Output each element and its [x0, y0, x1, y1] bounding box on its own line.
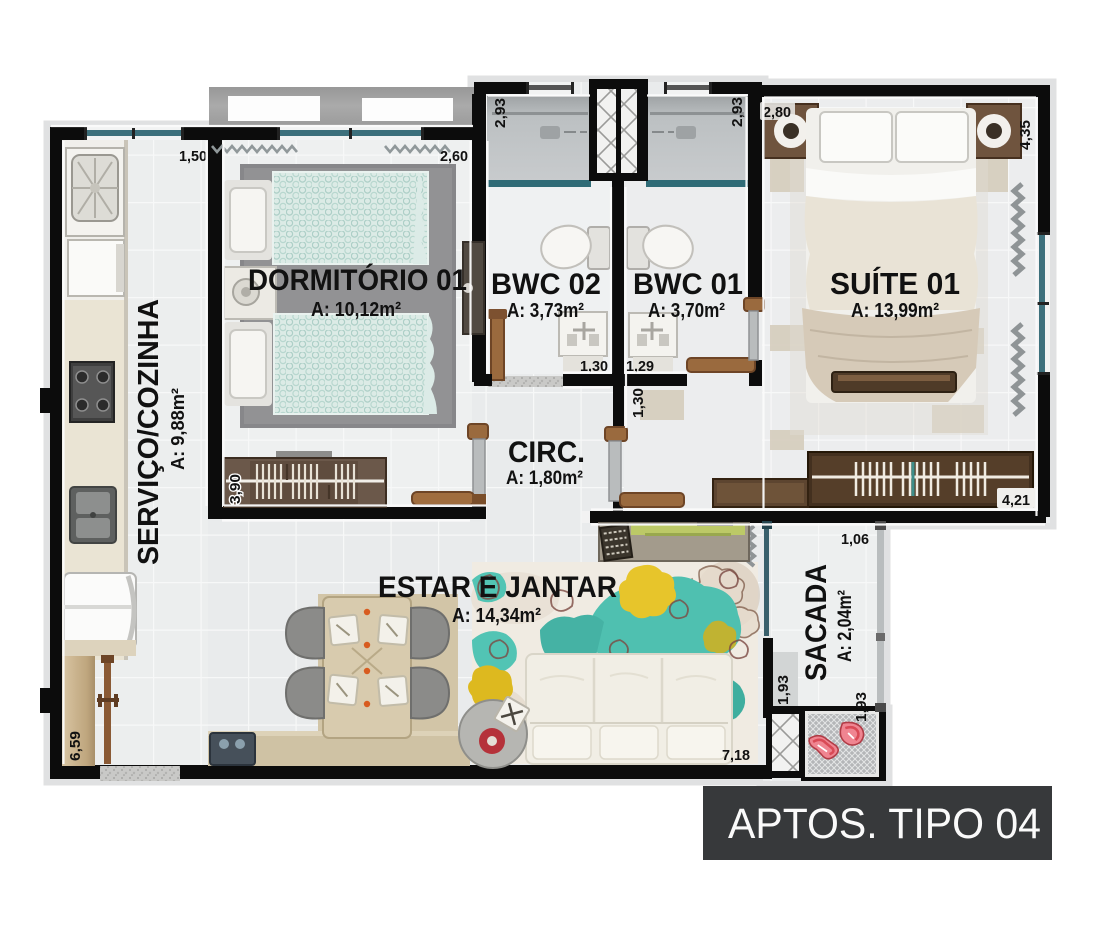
- svg-text:CIRC.: CIRC.: [508, 436, 585, 469]
- svg-text:A: 9,88m²: A: 9,88m²: [168, 388, 188, 470]
- svg-text:A: 2,04m²: A: 2,04m²: [835, 590, 856, 662]
- svg-text:DORMITÓRIO 01: DORMITÓRIO 01: [248, 263, 467, 297]
- svg-text:4,21: 4,21: [1002, 492, 1030, 509]
- svg-text:BWC 01: BWC 01: [633, 268, 743, 301]
- svg-text:A: 3,70m²: A: 3,70m²: [648, 300, 725, 322]
- svg-text:A: 10,12m²: A: 10,12m²: [311, 299, 401, 321]
- svg-text:2,93: 2,93: [729, 97, 746, 127]
- svg-text:7,18: 7,18: [722, 747, 750, 764]
- svg-text:SUÍTE 01: SUÍTE 01: [830, 266, 960, 301]
- svg-text:A: 3,73m²: A: 3,73m²: [507, 300, 584, 322]
- svg-text:1,93: 1,93: [775, 675, 792, 705]
- svg-text:SERVIÇO/COZINHA: SERVIÇO/COZINHA: [133, 299, 165, 565]
- svg-text:A: 14,34m²: A: 14,34m²: [452, 605, 541, 627]
- svg-text:BWC 02: BWC 02: [491, 268, 601, 301]
- svg-text:A: 1,80m²: A: 1,80m²: [506, 468, 583, 489]
- svg-text:1,30: 1,30: [630, 388, 647, 418]
- svg-text:1,50: 1,50: [179, 148, 207, 165]
- svg-text:APTOS. TIPO 04: APTOS. TIPO 04: [728, 800, 1041, 848]
- svg-text:1,06: 1,06: [841, 531, 869, 548]
- svg-text:SACADA: SACADA: [800, 564, 833, 681]
- svg-text:4,35: 4,35: [1017, 120, 1034, 150]
- svg-text:2,80: 2,80: [763, 104, 791, 121]
- svg-text:2,60: 2,60: [440, 148, 468, 165]
- svg-text:3,90: 3,90: [227, 474, 244, 504]
- svg-text:ESTAR E JANTAR: ESTAR E JANTAR: [378, 571, 617, 604]
- svg-text:A: 13,99m²: A: 13,99m²: [851, 300, 939, 322]
- svg-text:6,59: 6,59: [67, 731, 84, 761]
- svg-text:2,93: 2,93: [492, 98, 509, 128]
- svg-text:1,93: 1,93: [853, 692, 870, 722]
